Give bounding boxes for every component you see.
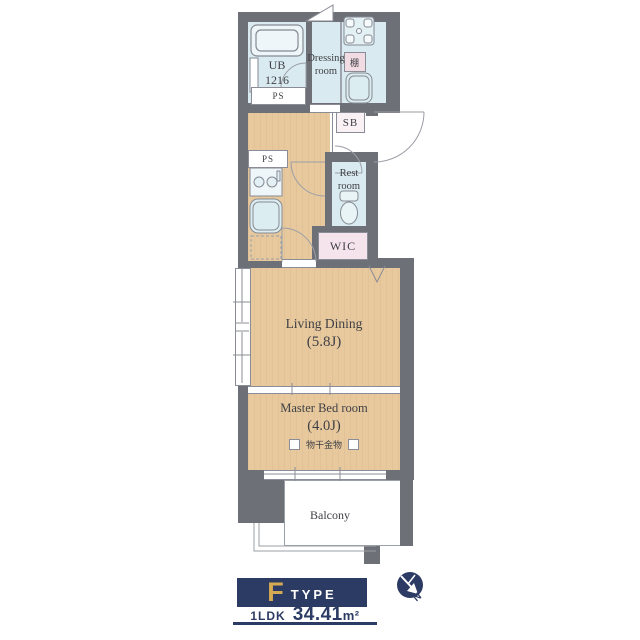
wall-top [238,12,400,22]
laundry-hardware: 物干金物 [248,438,400,451]
shoe-box: SB [336,112,365,133]
entrance-door-arc [374,112,424,162]
wall-rest-top [325,152,378,162]
layout-label: 1LDK [250,609,285,623]
balcony-label: Balcony [272,508,388,523]
window-bedroom-balcony [264,470,386,480]
floor-plan-page: PS 棚 SB PS WIC UB 1216 Dressing room Res… [0,0,640,640]
hardware-square-left [289,439,300,450]
wall-balcony-right [400,480,413,546]
wall-bed-bottom-right [386,470,414,480]
wic-label: WIC [330,239,356,254]
hardware-label: 物干金物 [306,438,342,451]
wic-box: WIC [318,232,368,260]
living-label: Living Dining (5.8J) [248,316,400,352]
ps-box-top: PS [251,87,306,105]
compass-north-label: N [411,591,424,604]
ps-top-label: PS [272,91,284,101]
area-unit: m² [343,608,360,623]
sb-label: SB [343,117,358,129]
wall-hall-living [248,261,282,268]
bedroom-label: Master Bed room (4.0J) [248,401,400,435]
area-row: 1LDK 34.41m² [233,604,377,622]
legend-underline [233,622,377,625]
wall-left [238,12,248,480]
type-letter: F [267,579,284,606]
restroom-label: Rest room [324,167,374,193]
wall-top-right [386,12,400,113]
dressing-label: Dressing room [296,52,356,78]
balcony-post [364,546,380,564]
wall-right-entry-top [366,103,378,116]
ps-mid-label: PS [262,154,274,164]
ps-box-mid: PS [248,150,288,168]
hardware-square-right [348,439,359,450]
partition-living-bedroom [248,386,400,394]
wall-right-lower [400,268,414,480]
type-word: TYPE [291,584,337,602]
type-badge: F TYPE [237,578,367,607]
doorway-hall-living [282,259,316,268]
ub-label: UB 1216 [252,58,302,88]
